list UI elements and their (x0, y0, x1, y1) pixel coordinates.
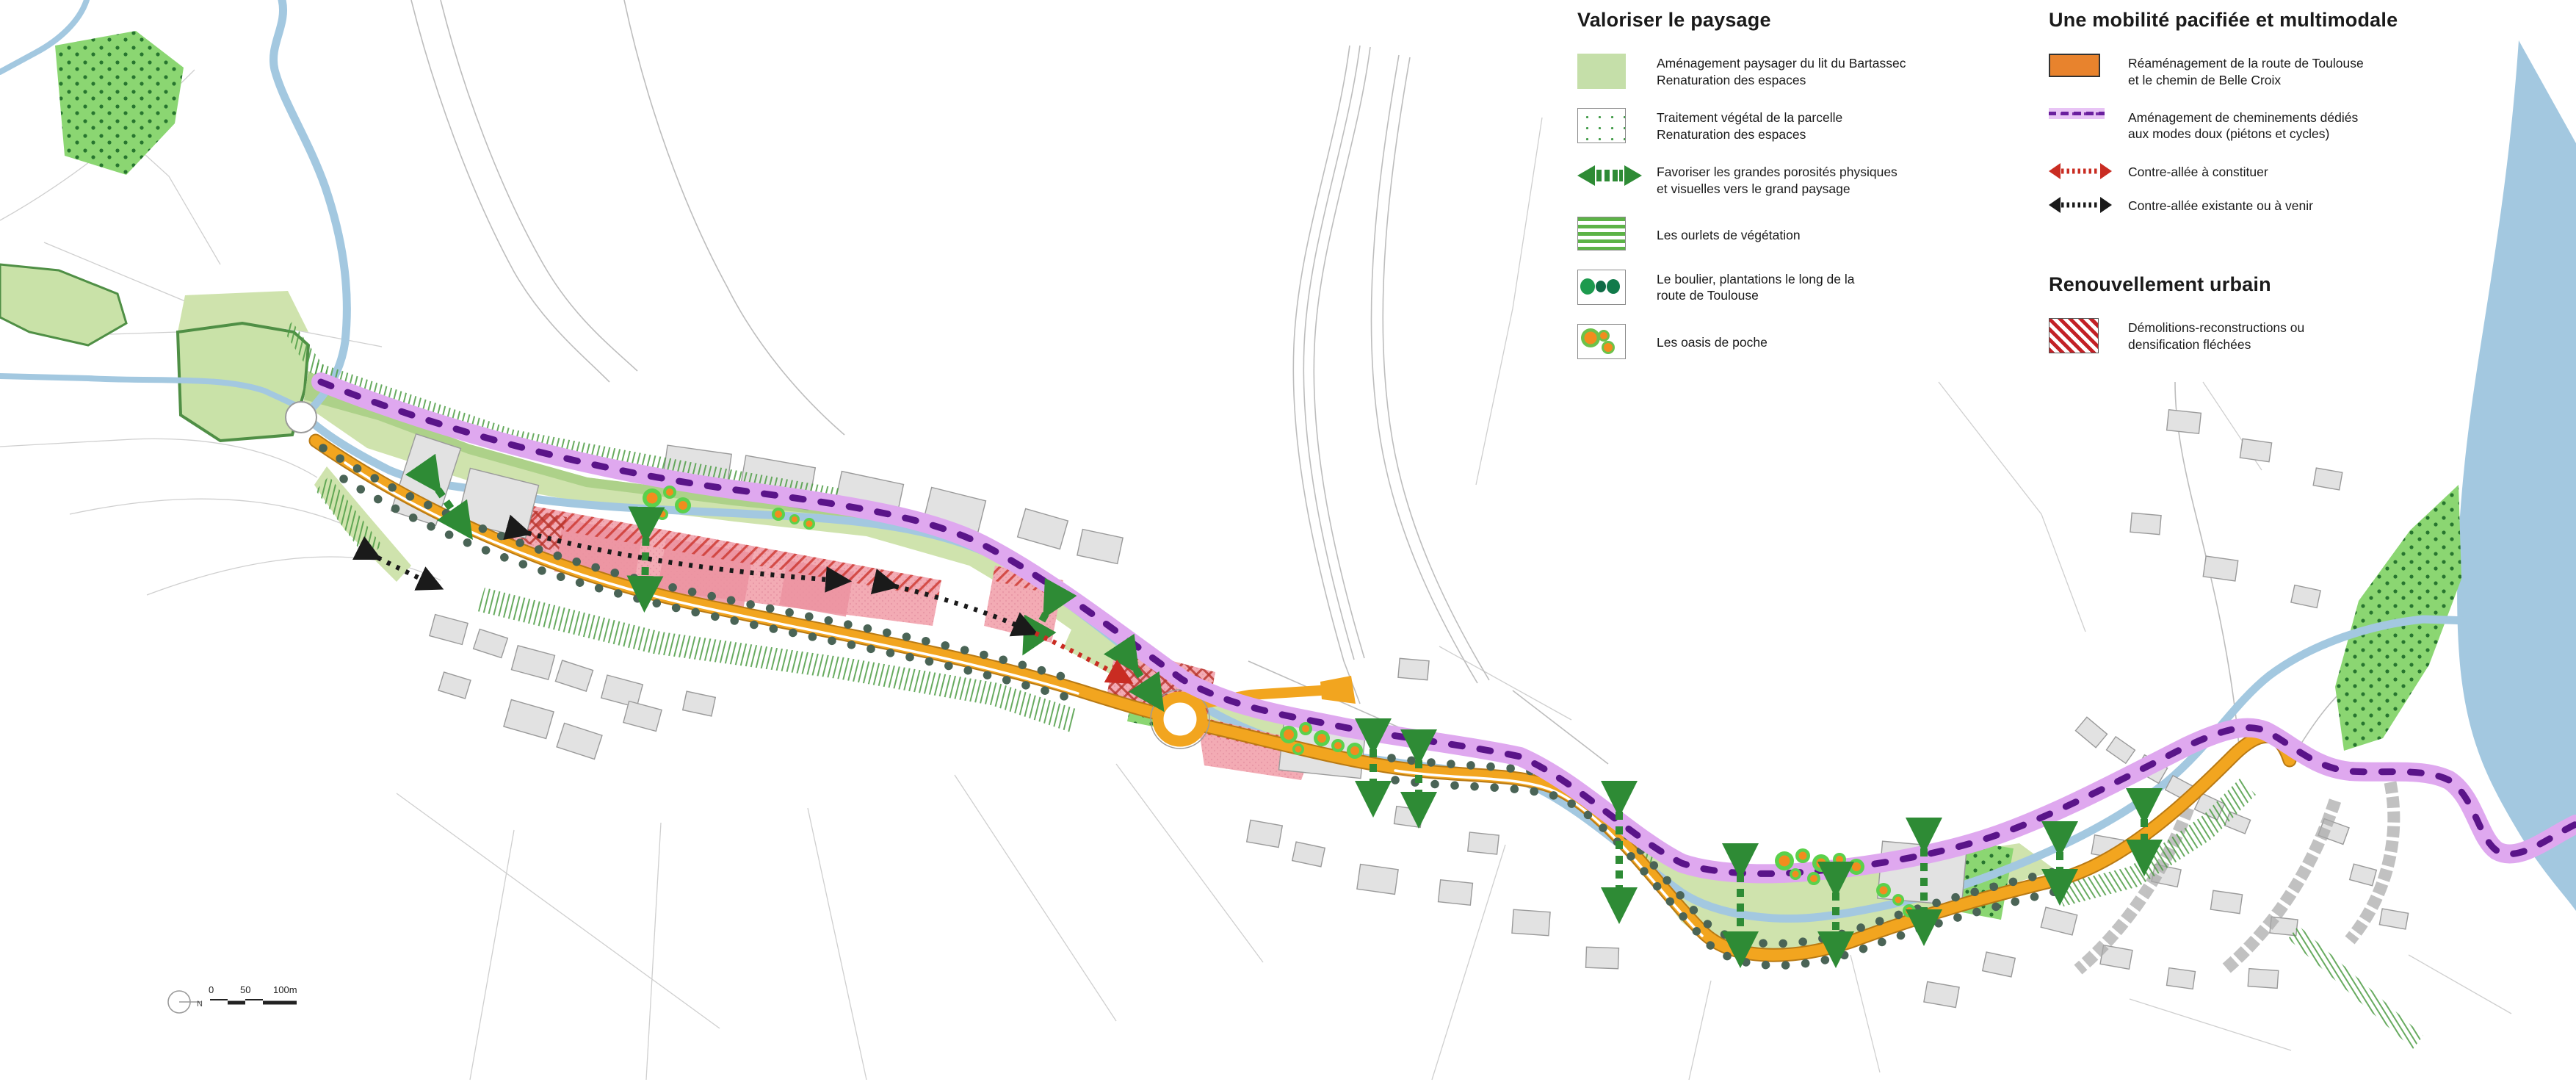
legend-item-oasis: Les oasis de poche (1577, 324, 2047, 359)
legend-label: Aménagement de cheminements dédiés (2128, 109, 2358, 126)
legend-label: Traitement végétal de la parcelle (1657, 109, 1842, 126)
legend-mobilite: Une mobilité pacifiée et multimodale Réa… (2049, 9, 2533, 234)
legend-item-porosites: Favoriser les grandes porosités physique… (1577, 162, 2047, 198)
legend-label: Contre-allée à constituer (2128, 164, 2268, 181)
legend-item-demolitions: Démolitions-reconstructions ou densifica… (2049, 318, 2533, 353)
legend-mobilite-title: Une mobilité pacifiée et multimodale (2049, 9, 2533, 32)
legend-label: Les ourlets de végétation (1657, 227, 1801, 244)
porosity-arrow-icon (1577, 162, 1642, 189)
contre-allee-constituer-icon (2049, 162, 2112, 181)
svg-text:0: 0 (209, 984, 214, 995)
red-hatch-swatch-icon (2049, 318, 2099, 353)
legend-label: et visuelles vers le grand paysage (1657, 181, 1897, 198)
legend-label: et le chemin de Belle Croix (2128, 72, 2364, 89)
legend-item-ourlets: Les ourlets de végétation (1577, 217, 2047, 250)
legend-item-traitement: Traitement végétal de la parcelle Renatu… (1577, 108, 2047, 143)
road-swatch-icon (2049, 54, 2100, 77)
svg-text:N: N (197, 1000, 203, 1009)
legend-item-contre-allee-existante: Contre-allée existante ou à venir (2049, 195, 2533, 214)
legend-label: Renaturation des espaces (1657, 126, 1842, 143)
legend-item-amenagement: Aménagement paysager du lit du Bartassec… (1577, 54, 2047, 89)
scale-ticks: 0 50 100m (209, 984, 297, 1003)
legend-label: Démolitions-reconstructions ou (2128, 320, 2304, 336)
legend-label: Contre-allée existante ou à venir (2128, 198, 2313, 214)
legend-label: Réaménagement de la route de Toulouse (2128, 55, 2364, 72)
legend-item-modes-doux: Aménagement de cheminements dédiés aux m… (2049, 108, 2533, 143)
boulier-swatch-icon (1577, 270, 1626, 305)
legend-label: densification fléchées (2128, 336, 2304, 353)
legend-item-contre-allee-constituer: Contre-allée à constituer (2049, 162, 2533, 181)
legend-renouvellement-title: Renouvellement urbain (2049, 273, 2533, 296)
legend-renouvellement: Renouvellement urbain Démolitions-recons… (2049, 273, 2533, 372)
svg-text:50: 50 (240, 984, 250, 995)
modes-doux-swatch-icon (2049, 108, 2105, 119)
legend-label: route de Toulouse (1657, 287, 1855, 304)
roundabout-west (286, 402, 316, 433)
legend-paysage: Valoriser le paysage Aménagement paysage… (1577, 9, 2047, 378)
dotted-fill-swatch-icon (1577, 108, 1626, 143)
stripes-swatch-icon (1577, 217, 1626, 250)
legend-label: Aménagement paysager du lit du Bartassec (1657, 55, 1906, 72)
legend-label: Renaturation des espaces (1657, 72, 1906, 89)
legend-label: Favoriser les grandes porosités physique… (1657, 164, 1897, 181)
scale-bar: N 0 50 100m (163, 977, 339, 1028)
legend-label: aux modes doux (piétons et cycles) (2128, 126, 2358, 143)
svg-text:100m: 100m (273, 984, 297, 995)
legend-label: Les oasis de poche (1657, 334, 1768, 351)
legend-item-boulier: Le boulier, plantations le long de la ro… (1577, 270, 2047, 305)
legend-label: Le boulier, plantations le long de la (1657, 271, 1855, 288)
legend-paysage-title: Valoriser le paysage (1577, 9, 2047, 32)
legend-item-route: Réaménagement de la route de Toulouse et… (2049, 54, 2533, 89)
contre-allee-existante-icon (2049, 195, 2112, 214)
green-fill-swatch-icon (1577, 54, 1626, 89)
oasis-swatch-icon (1577, 324, 1626, 359)
north-arrow-icon: N (168, 991, 203, 1013)
